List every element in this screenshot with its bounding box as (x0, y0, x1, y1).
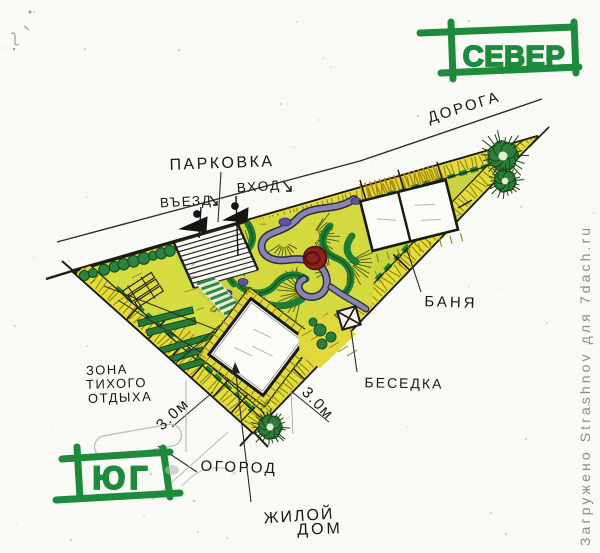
svg-text:СЕВЕР: СЕВЕР (463, 41, 565, 73)
svg-text:ОГОРОД: ОГОРОД (200, 458, 277, 478)
svg-text:ЮГ: ЮГ (92, 460, 151, 496)
svg-text:БАНЯ: БАНЯ (424, 293, 478, 312)
svg-text:ВХОД: ВХОД (236, 177, 281, 195)
svg-text:Загружено Strashnov для 7dach.: Загружено Strashnov для 7dach.ru (577, 225, 593, 546)
svg-text:ОТДЫХА: ОТДЫХА (88, 389, 153, 406)
svg-text:ДОМ: ДОМ (297, 520, 343, 539)
svg-text:ВЪЕЗД: ВЪЕЗД (159, 193, 212, 211)
svg-text:БЕСЕДКА: БЕСЕДКА (364, 374, 443, 391)
